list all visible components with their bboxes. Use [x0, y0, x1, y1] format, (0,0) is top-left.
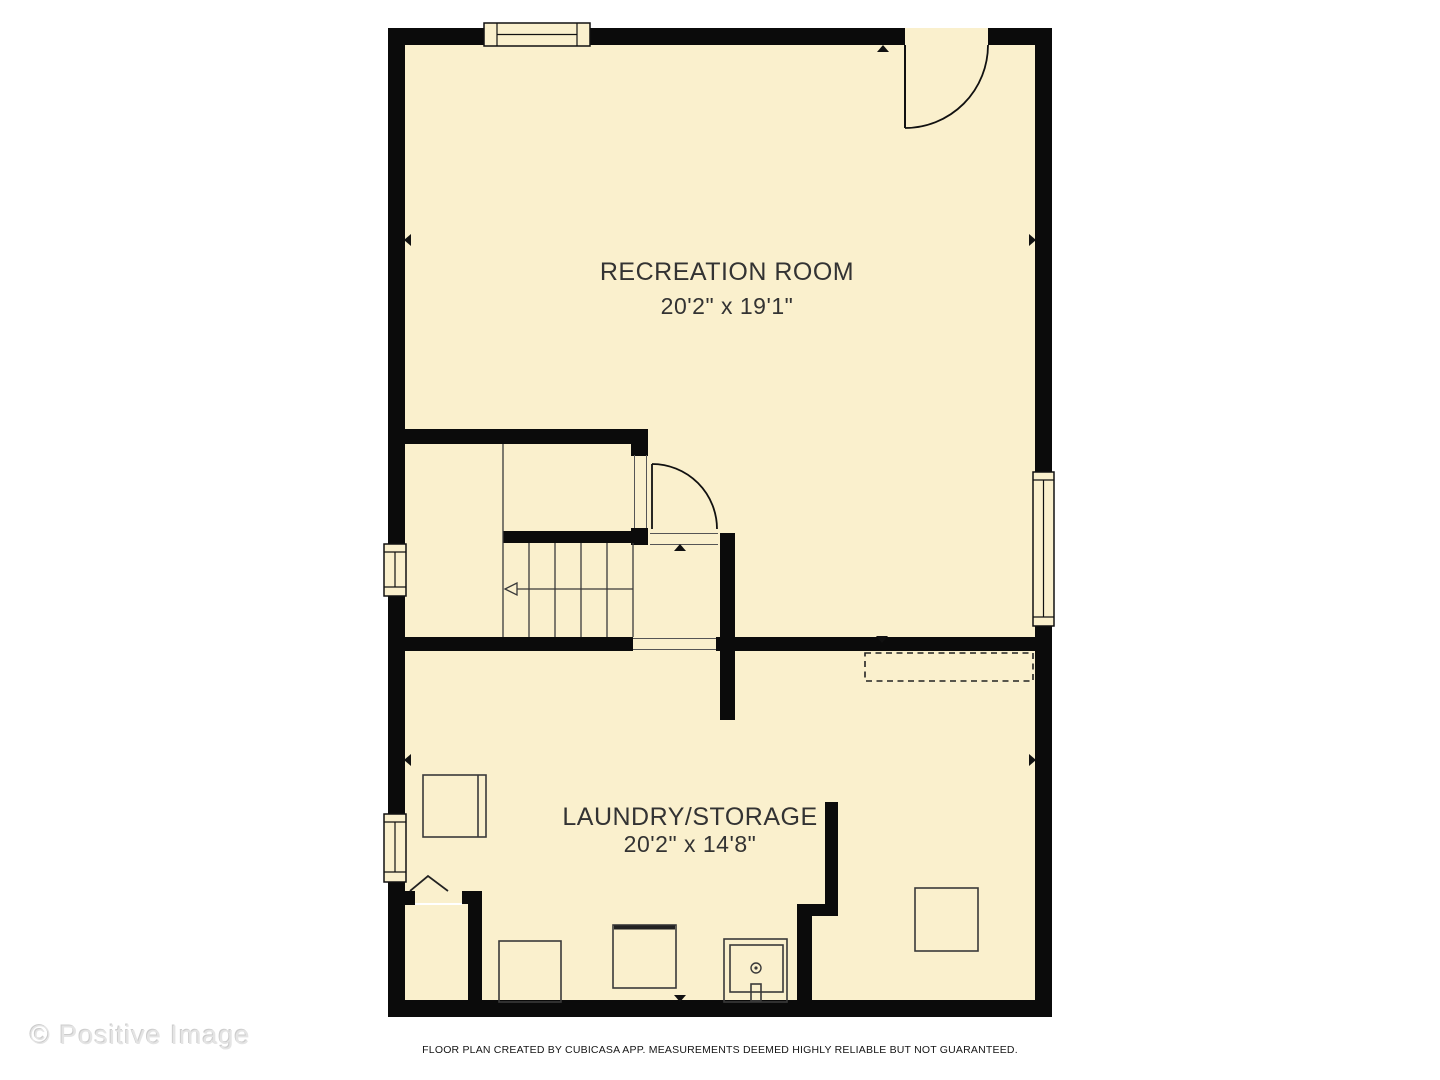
wall-top-left [388, 28, 905, 45]
wall-bottom [388, 1000, 1052, 1017]
room-label-laundry: LAUNDRY/STORAGE [562, 803, 817, 831]
floor-area [388, 28, 1052, 1017]
wall-laundry-divider-upper [825, 802, 838, 914]
wall-vertical-mid [720, 533, 735, 720]
wall-closet-right [468, 891, 482, 1002]
wall-stair-top [405, 429, 648, 444]
wall-laundry-divider-lower [797, 904, 812, 1002]
wall-door-jamb-lower [631, 528, 648, 545]
wall-stair-edge [503, 531, 633, 543]
floor-plan: RECREATION ROOM 20'2" x 19'1" LAUNDRY/ST… [0, 0, 1440, 1080]
footer-disclaimer: FLOOR PLAN CREATED BY CUBICASA APP. MEAS… [0, 1044, 1440, 1056]
window-left-upper [384, 544, 406, 596]
wall-door-jamb-upper [631, 429, 648, 456]
room-label-recreation: RECREATION ROOM [600, 258, 854, 286]
room-dimensions-laundry: 20'2" x 14'8" [624, 831, 757, 857]
wall-closet-stub [402, 891, 415, 905]
floor-plan-page: RECREATION ROOM 20'2" x 19'1" LAUNDRY/ST… [0, 0, 1440, 1080]
window-left-lower [384, 814, 406, 882]
wall-hall-bottom [388, 637, 633, 651]
room-dimensions-recreation: 20'2" x 19'1" [661, 293, 794, 319]
window-top [484, 23, 590, 46]
window-right [1033, 472, 1054, 626]
